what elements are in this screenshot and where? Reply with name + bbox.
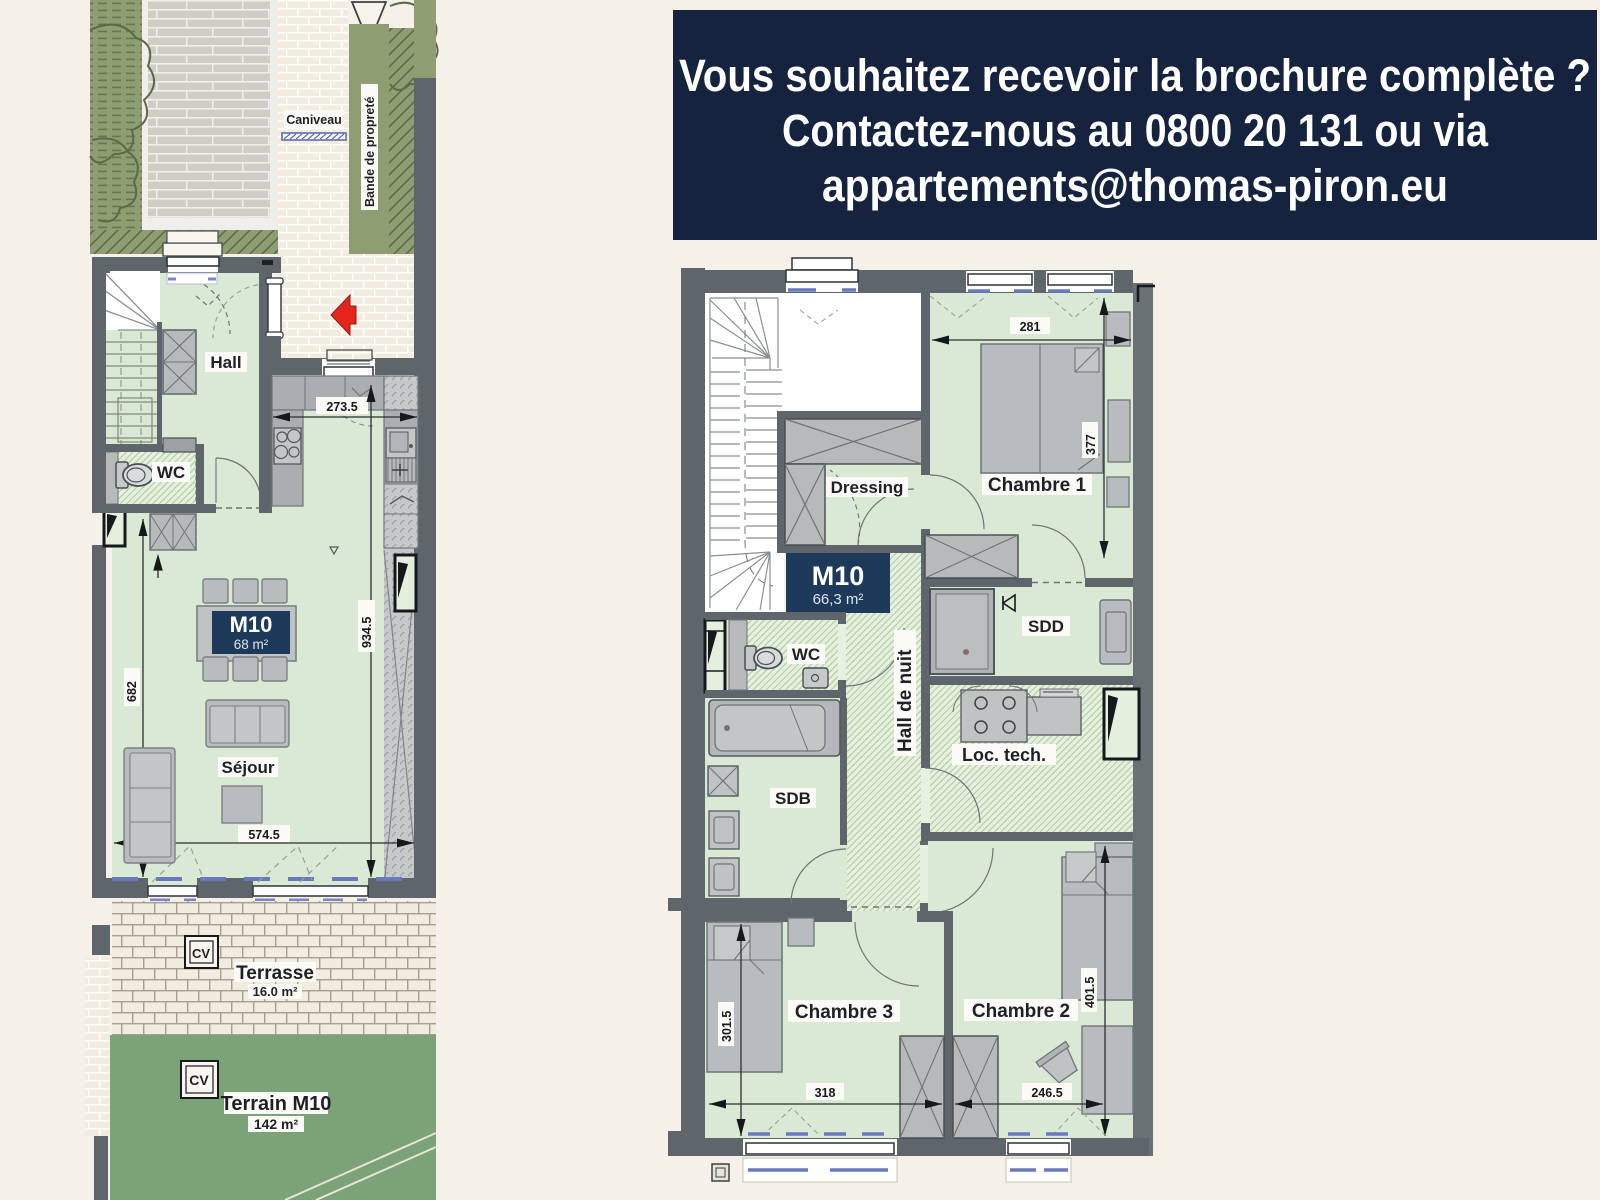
svg-text:Vous souhaitez recevoir la bro: Vous souhaitez recevoir la brochure comp… bbox=[679, 50, 1591, 101]
svg-text:SDD: SDD bbox=[1028, 617, 1064, 636]
svg-text:Chambre 1: Chambre 1 bbox=[988, 475, 1087, 496]
svg-text:Chambre 3: Chambre 3 bbox=[795, 1002, 893, 1023]
svg-text:CV: CV bbox=[189, 1072, 209, 1088]
svg-text:66,3 m²: 66,3 m² bbox=[813, 591, 864, 608]
svg-text:16.0 m²: 16.0 m² bbox=[253, 984, 298, 999]
svg-text:Hall de nuit: Hall de nuit bbox=[895, 649, 916, 752]
svg-text:934.5: 934.5 bbox=[360, 617, 374, 648]
svg-text:318: 318 bbox=[815, 1086, 836, 1100]
svg-text:Terrain M10: Terrain M10 bbox=[221, 1093, 332, 1115]
svg-text:Terrasse: Terrasse bbox=[236, 963, 314, 984]
svg-text:Loc. tech.: Loc. tech. bbox=[962, 745, 1046, 765]
svg-text:301.5: 301.5 bbox=[720, 1011, 734, 1042]
svg-text:401.5: 401.5 bbox=[1083, 977, 1097, 1008]
svg-text:Contactez-nous au 0800 20 131: Contactez-nous au 0800 20 131 ou via bbox=[782, 105, 1489, 156]
svg-text:246.5: 246.5 bbox=[1031, 1086, 1062, 1100]
svg-text:142 m²: 142 m² bbox=[254, 1116, 299, 1132]
svg-text:574.5: 574.5 bbox=[248, 828, 279, 842]
svg-text:281: 281 bbox=[1020, 320, 1041, 334]
svg-text:WC: WC bbox=[792, 645, 820, 664]
svg-text:M10: M10 bbox=[230, 612, 273, 637]
svg-text:Dressing: Dressing bbox=[831, 478, 904, 497]
svg-text:Séjour: Séjour bbox=[222, 758, 275, 777]
svg-text:M10: M10 bbox=[812, 561, 865, 591]
svg-text:377: 377 bbox=[1084, 434, 1098, 455]
svg-text:Chambre 2: Chambre 2 bbox=[972, 1001, 1070, 1022]
svg-text:68 m²: 68 m² bbox=[234, 637, 269, 652]
svg-text:Hall: Hall bbox=[210, 353, 241, 372]
svg-text:Caniveau: Caniveau bbox=[286, 113, 342, 127]
svg-text:SDB: SDB bbox=[775, 789, 811, 808]
svg-text:CV: CV bbox=[192, 946, 210, 961]
svg-text:WC: WC bbox=[157, 463, 185, 482]
svg-text:appartements@thomas-piron.eu: appartements@thomas-piron.eu bbox=[822, 160, 1448, 211]
svg-text:273.5: 273.5 bbox=[326, 400, 357, 414]
svg-text:682: 682 bbox=[125, 681, 139, 702]
svg-text:Bande de propreté: Bande de propreté bbox=[363, 97, 377, 207]
